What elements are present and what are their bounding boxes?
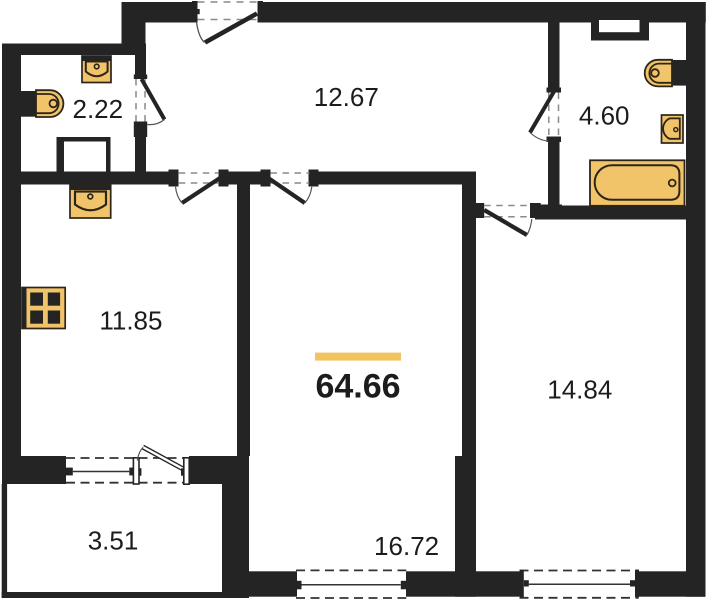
svg-text:14.84: 14.84: [547, 374, 612, 404]
svg-text:4.60: 4.60: [579, 101, 630, 131]
svg-text:11.85: 11.85: [99, 305, 162, 335]
svg-text:12.67: 12.67: [314, 82, 379, 112]
svg-text:3.51: 3.51: [88, 525, 139, 555]
svg-text:64.66: 64.66: [315, 368, 400, 406]
svg-text:16.72: 16.72: [374, 531, 439, 561]
svg-text:2.22: 2.22: [72, 94, 123, 124]
